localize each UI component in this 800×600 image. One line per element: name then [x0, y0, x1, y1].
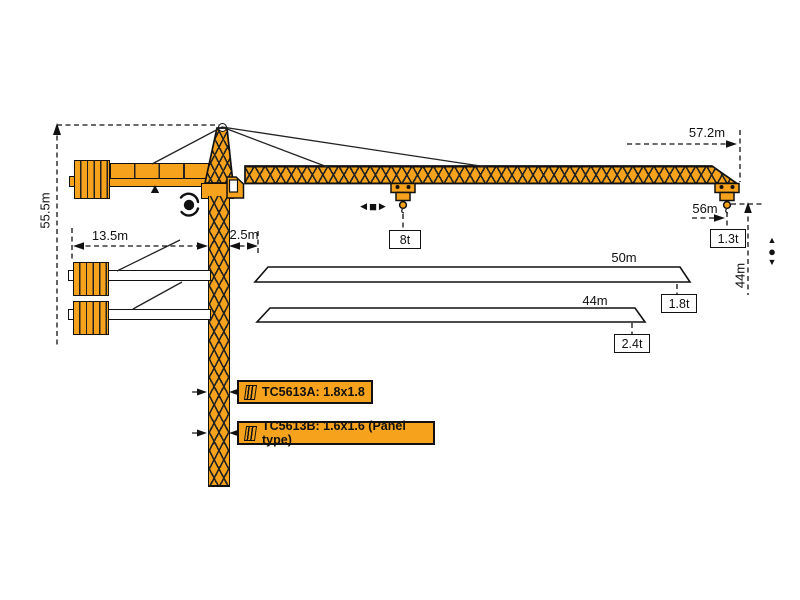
hoist-icon: ▲ ● ▼: [762, 233, 782, 269]
dim-label-rear-radius: 2.5m: [219, 227, 269, 242]
label-arrow: [197, 430, 207, 437]
hoist-down-arrow: ▼: [768, 258, 777, 267]
load-box-max: 8t: [389, 230, 421, 249]
label-jib-option-44m: 44m: [570, 293, 620, 308]
trolley-travel-icon: ◀ ■ ▶: [354, 198, 392, 214]
trolley-square: ■: [369, 200, 377, 213]
dim-label-max-radius: 56m: [680, 201, 730, 216]
jib-outline: [245, 166, 737, 184]
jib-profile-44m: [257, 308, 645, 322]
label-arrow: [197, 389, 207, 396]
counter-jib-pendant: [152, 127, 222, 164]
dim-arrow: [197, 242, 208, 250]
load-box-tip-50m: 1.8t: [661, 294, 697, 313]
mast-variant-b-label: TC5613B: 1.6x1.6 (Panel type): [262, 419, 427, 447]
jib-pendant-2: [222, 127, 487, 167]
mast-variant-a-box: TC5613A: 1.8x1.8: [237, 380, 373, 404]
tower-top-outline: [205, 128, 233, 183]
alt-pendant-stub-44m: [133, 282, 182, 309]
dim-arrow: [229, 242, 240, 250]
dim-label-lifting-height: 44m: [733, 256, 748, 296]
mast-variant-a-label: TC5613A: 1.8x1.8: [262, 385, 365, 399]
mast-section-icon: [244, 385, 257, 400]
mast-variant-b-box: TC5613B: 1.6x1.6 (Panel type): [237, 421, 435, 445]
alt-pendant-stub-50m: [117, 240, 180, 271]
dim-arrow: [726, 140, 737, 148]
jib-profile-50m: [255, 267, 690, 282]
mast-section-icon: [244, 426, 257, 441]
crane-diagram-canvas: { "diagram": { "colors": { "crane_orange…: [0, 0, 800, 600]
jib-pendant-1: [222, 127, 330, 168]
hook-main: [400, 202, 407, 209]
load-box-tip-57m: 1.3t: [710, 229, 746, 248]
load-box-tip-44m: 2.4t: [614, 334, 650, 353]
trolley-main: [391, 184, 415, 214]
dim-label-tower-height: 55.5m: [38, 186, 53, 236]
trolley-right-arrow: ▶: [379, 202, 386, 211]
label-jib-option-50m: 50m: [599, 250, 649, 265]
hoist-dot: ●: [768, 245, 776, 258]
dim-arrow: [73, 242, 84, 250]
dim-arrow: [247, 242, 258, 250]
slewing-rotation-icon: [181, 194, 198, 216]
dim-label-counter-jib: 13.5m: [85, 228, 135, 243]
trolley-left-arrow: ◀: [360, 202, 367, 211]
cab-window: [230, 180, 238, 192]
dim-label-jib-length: 57.2m: [682, 125, 732, 140]
operator-cab: [227, 177, 244, 198]
counter-jib-marker: [151, 185, 159, 193]
